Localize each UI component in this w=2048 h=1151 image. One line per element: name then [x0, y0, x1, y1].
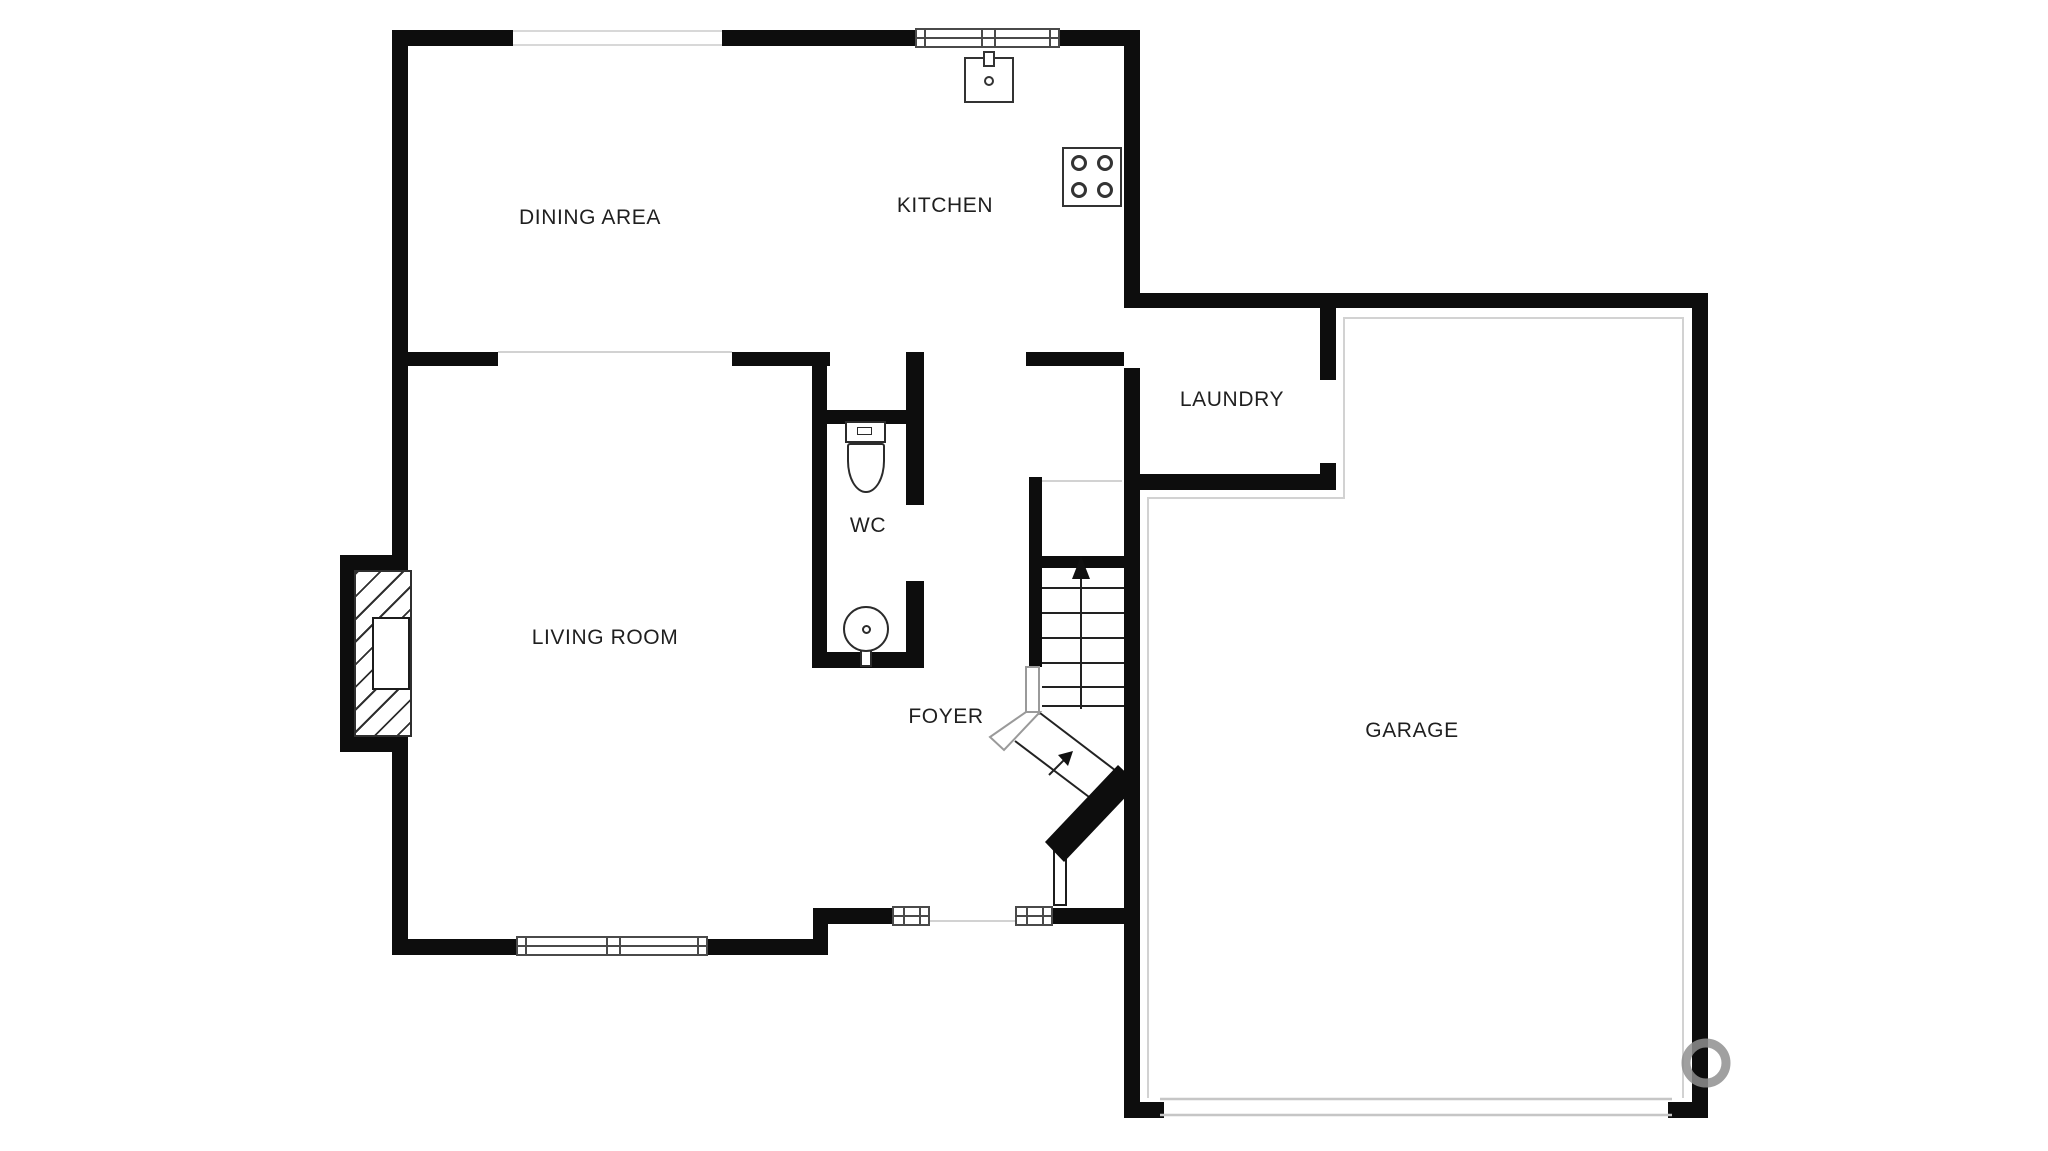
sidelight-window-symbol	[892, 906, 930, 926]
room-label-dining-area: DINING AREA	[519, 206, 661, 230]
room-label-kitchen: KITCHEN	[897, 194, 993, 218]
wall	[1320, 308, 1336, 380]
winder-direction-arrow	[1058, 751, 1073, 766]
window-mullion	[924, 30, 926, 46]
wall	[392, 939, 516, 955]
sink-drain-symbol	[984, 76, 994, 86]
wall	[1692, 293, 1708, 1118]
window-mullion	[903, 908, 905, 924]
staircase-symbol	[1042, 576, 1124, 709]
window-mullion	[981, 30, 983, 46]
stair-railing-symbol	[1026, 667, 1039, 714]
stove-burner-symbol	[1097, 155, 1113, 171]
window-mullion	[525, 938, 527, 954]
garage-door-jamb	[1668, 1102, 1708, 1118]
window-mullion	[619, 938, 621, 954]
kitchen-faucet-symbol	[983, 51, 995, 67]
wc-sink-drain-symbol	[862, 625, 871, 634]
wall	[408, 352, 498, 366]
front-door-leaf-symbol	[1053, 846, 1067, 906]
window-mullion	[1049, 30, 1051, 46]
stove-symbol	[1062, 147, 1122, 207]
wall	[392, 752, 408, 955]
wall	[340, 737, 408, 752]
wall	[1124, 293, 1708, 308]
window-symbol	[516, 936, 708, 956]
wall	[828, 908, 892, 924]
toilet-flush-symbol	[857, 427, 872, 435]
window-glass-line	[1017, 915, 1051, 917]
room-label-garage: GARAGE	[1365, 719, 1458, 743]
wall	[1124, 474, 1336, 490]
window-symbol	[915, 28, 1060, 48]
stair-wall	[1029, 477, 1042, 667]
window-mullion	[606, 938, 608, 954]
stair-opening-line	[1042, 480, 1122, 482]
floor-plan: DINING AREA KITCHEN LAUNDRY WC LIVING RO…	[0, 0, 2048, 1151]
window-mullion	[697, 938, 699, 954]
wall	[1124, 30, 1140, 308]
plan-overlay	[0, 0, 2048, 1151]
wall	[813, 908, 828, 955]
window-mullion	[919, 908, 921, 924]
window-glass-line	[917, 37, 1058, 39]
stove-burner-symbol	[1071, 155, 1087, 171]
sidelight-window-symbol	[1015, 906, 1053, 926]
window-symbol	[513, 30, 722, 46]
room-label-foyer: FOYER	[908, 705, 983, 729]
window-glass-line	[518, 945, 706, 947]
garage-door-jamb	[1124, 1102, 1164, 1118]
winder-stairs-symbol	[1015, 713, 1124, 803]
room-opening-line	[498, 351, 732, 353]
toilet-bowl-symbol	[847, 443, 885, 493]
wall	[340, 555, 408, 570]
wall	[722, 30, 915, 46]
front-door-threshold	[930, 920, 1015, 922]
wall	[340, 555, 354, 752]
window-mullion	[994, 30, 996, 46]
wall	[392, 30, 408, 555]
wall	[1026, 352, 1124, 366]
room-label-wc: WC	[850, 514, 886, 538]
wall	[392, 30, 513, 46]
window-mullion	[1042, 908, 1044, 924]
wall	[1053, 908, 1124, 924]
window-mullion	[1026, 908, 1028, 924]
fireplace-firebox-symbol	[372, 617, 410, 690]
stove-burner-symbol	[1097, 182, 1113, 198]
garage-inner-line	[1148, 318, 1683, 1098]
wall	[812, 366, 827, 652]
room-label-laundry: LAUNDRY	[1180, 388, 1284, 412]
stove-burner-symbol	[1071, 182, 1087, 198]
room-label-living-room: LIVING ROOM	[532, 626, 679, 650]
stair-wall	[1042, 556, 1124, 568]
stair-railing-symbol	[990, 712, 1040, 750]
wall	[732, 352, 830, 366]
door-hinge-block	[1053, 838, 1067, 846]
window-glass-line	[894, 915, 928, 917]
wall	[906, 581, 924, 652]
wall	[906, 352, 924, 505]
wall	[708, 939, 813, 955]
